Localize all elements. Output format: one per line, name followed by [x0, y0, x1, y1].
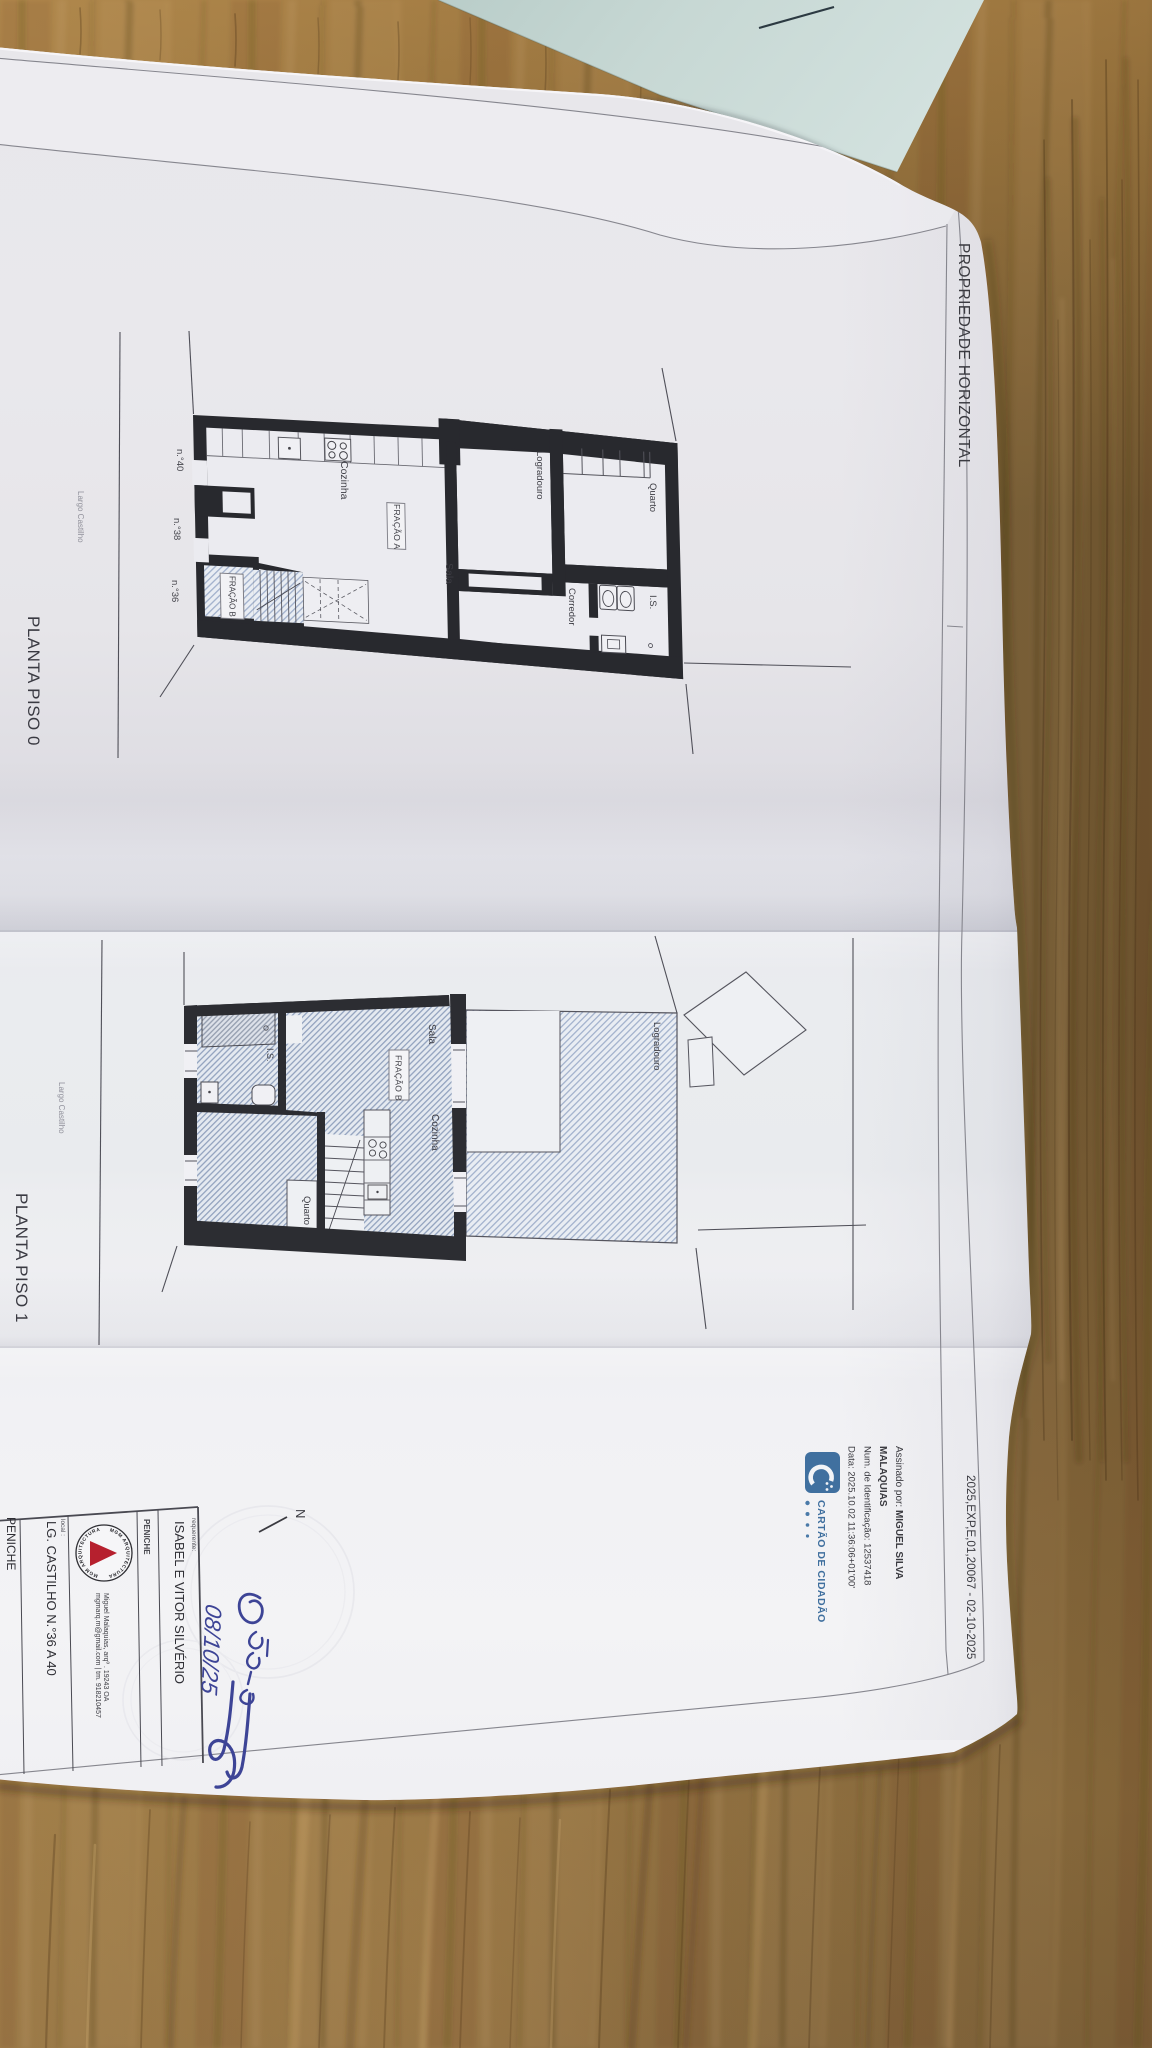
svg-text:I.S.: I.S.: [647, 595, 658, 609]
svg-text:LG. CASTILHO N.°36 A 40: LG. CASTILHO N.°36 A 40: [44, 1521, 59, 1676]
svg-text:Data: 2025.10.02 11:36:06+01'0: Data: 2025.10.02 11:36:06+01'00': [846, 1446, 857, 1588]
svg-text:Largo Castilho: Largo Castilho: [76, 491, 85, 543]
svg-text:08/10/25: 08/10/25: [196, 1602, 226, 1697]
svg-text:requerente:: requerente:: [190, 1518, 197, 1551]
svg-text:N: N: [293, 1509, 308, 1518]
svg-text:PROPRIEDADE HORIZONTAL: PROPRIEDADE HORIZONTAL: [955, 243, 972, 468]
svg-text:ISABEL E VITOR SILVÉRIO: ISABEL E VITOR SILVÉRIO: [172, 1521, 187, 1684]
svg-text:MALAQUIAS: MALAQUIAS: [877, 1446, 888, 1507]
svg-text:n.°40: n.°40: [174, 449, 185, 471]
svg-text:PLANTA PISO 1: PLANTA PISO 1: [12, 1193, 31, 1323]
svg-text:Miguel Malaquias, arqº . 19: Miguel Malaquias, arqº . 19243 OA: [102, 1593, 109, 1702]
svg-text:n.°38: n.°38: [171, 518, 182, 540]
svg-text:PLANTA PISO 0: PLANTA PISO 0: [24, 616, 43, 746]
svg-text:Logradouro: Logradouro: [651, 1022, 662, 1071]
svg-text:Quarto: Quarto: [301, 1196, 312, 1225]
svg-text:2025,EXP,E,01,20067 - 02-10-20: 2025,EXP,E,01,20067 - 02-10-2025: [964, 1475, 977, 1660]
svg-text:FRAÇÃO B: FRAÇÃO B: [394, 1055, 404, 1101]
svg-text:FRAÇÃO A: FRAÇÃO A: [392, 504, 402, 549]
svg-text:local :: local :: [59, 1519, 66, 1536]
svg-text:Corredor: Corredor: [566, 588, 577, 626]
svg-text:I.S.: I.S.: [265, 1048, 275, 1062]
svg-text:Cozinha: Cozinha: [338, 461, 350, 500]
svg-text:mgmarq.m@gmail.com | tm. 9: mgmarq.m@gmail.com | tm. 918210457: [94, 1593, 101, 1718]
svg-text:n.°36: n.°36: [169, 580, 180, 602]
svg-text:Cozinha: Cozinha: [429, 1114, 440, 1151]
svg-text:Logradouro: Logradouro: [534, 451, 545, 500]
svg-text:Quarto: Quarto: [647, 483, 658, 512]
svg-text:Sala: Sala: [443, 563, 455, 584]
svg-text:CARTÃO DE CIDADÃO: CARTÃO DE CIDADÃO: [815, 1500, 828, 1623]
svg-text:FRAÇÃO B: FRAÇÃO B: [228, 576, 237, 617]
svg-text:Largo Castilho: Largo Castilho: [57, 1082, 66, 1134]
svg-text:Num. de Identificação: 1253741: Num. de Identificação: 12537418: [862, 1446, 873, 1585]
svg-text:Sala: Sala: [426, 1024, 437, 1044]
svg-text:PENICHE: PENICHE: [142, 1519, 151, 1555]
svg-text:Assinado por: MIGUEL SILVA: Assinado por: MIGUEL SILVA: [893, 1446, 904, 1579]
svg-text:PENICHE: PENICHE: [4, 1517, 18, 1570]
